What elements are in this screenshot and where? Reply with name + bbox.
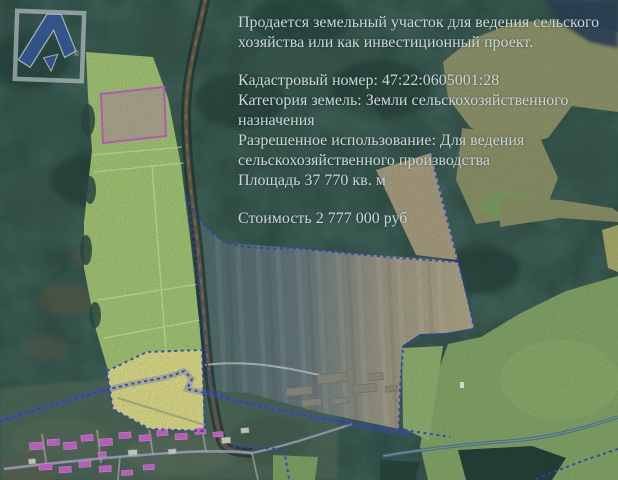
listing-details: Кадастровый номер: 47:22:0605001:28 Кате…	[238, 71, 616, 191]
listing-text: Продается земельный участок для ведения …	[238, 13, 616, 247]
land-listing-image: ® Продается земельный участок для ведени…	[0, 0, 618, 480]
registered-trademark: ®	[73, 48, 80, 58]
logo-triangle-icon	[43, 54, 58, 71]
permitted-use: Разрешенное использование: Для ведения с…	[238, 131, 616, 171]
listing-intro: Продается земельный участок для ведения …	[238, 13, 616, 53]
area: Площадь 37 770 кв. м	[238, 171, 616, 191]
listing-price: Стоимость 2 777 000 руб	[238, 209, 616, 229]
agency-logo: ®	[6, 4, 92, 90]
land-category: Категория земель: Земли сельскохозяйстве…	[238, 91, 616, 131]
cadastral-number: Кадастровый номер: 47:22:0605001:28	[238, 71, 616, 91]
